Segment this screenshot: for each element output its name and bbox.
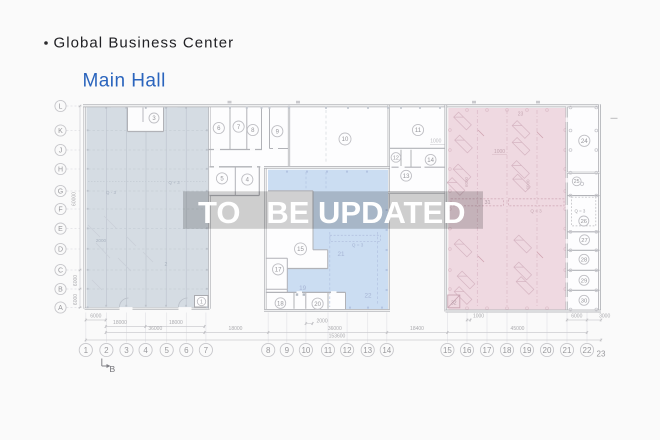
svg-text:A: A [58,305,63,312]
svg-text:Global Business Center: Global Business Center [54,35,235,52]
svg-text:7: 7 [204,346,209,355]
svg-text:28: 28 [581,257,587,263]
svg-text:9: 9 [285,346,290,355]
svg-text:F: F [58,207,62,214]
svg-text:6000: 6000 [73,294,79,305]
svg-text:17: 17 [275,268,282,274]
svg-text:29: 29 [581,278,587,284]
svg-text:6000: 6000 [73,275,79,286]
svg-text:153600: 153600 [329,333,346,339]
svg-text:21: 21 [563,346,572,355]
svg-text:6: 6 [184,346,189,355]
svg-text:20: 20 [314,302,321,308]
svg-text:45000: 45000 [511,326,525,332]
svg-text:18400: 18400 [410,326,424,332]
svg-text:6000: 6000 [526,179,531,190]
svg-text:12: 12 [393,155,399,161]
svg-text:14: 14 [382,346,391,355]
svg-text:27: 27 [581,238,587,244]
svg-text:2000: 2000 [96,238,107,243]
svg-text:22: 22 [364,292,372,299]
svg-text:4: 4 [143,346,148,355]
svg-text:3: 3 [124,346,129,355]
svg-text:19: 19 [299,285,307,292]
svg-text:10: 10 [342,137,349,143]
svg-text:1000: 1000 [494,149,505,155]
svg-text:6000: 6000 [464,176,469,187]
svg-text:1000: 1000 [430,139,441,145]
svg-text:14: 14 [427,158,434,164]
svg-text:21: 21 [337,251,345,258]
svg-text:16: 16 [463,346,472,355]
svg-text:2: 2 [165,262,168,268]
svg-text:1000: 1000 [473,313,484,319]
svg-text:12: 12 [343,346,352,355]
svg-text:K: K [58,128,63,135]
svg-text:1: 1 [200,299,203,305]
svg-text:36000: 36000 [148,326,162,332]
svg-text:31: 31 [484,200,490,206]
svg-text:TO BE UPDATED: TO BE UPDATED [198,195,466,230]
svg-text:2000: 2000 [317,318,328,324]
svg-text:36000: 36000 [328,326,342,332]
svg-text:30: 30 [581,298,587,304]
svg-text:18: 18 [277,301,284,307]
svg-text:L: L [59,104,63,111]
svg-text:17: 17 [483,346,492,355]
svg-text:G: G [58,189,63,196]
svg-text:11: 11 [415,128,422,134]
svg-text:18000: 18000 [169,320,183,326]
svg-text:E: E [58,226,63,233]
svg-text:20: 20 [543,346,552,355]
svg-text:Q = 3: Q = 3 [352,243,364,248]
svg-text:18000: 18000 [113,320,127,326]
svg-text:Q = 3: Q = 3 [530,209,542,214]
svg-text:32: 32 [451,300,457,306]
svg-text:18000: 18000 [229,326,243,332]
svg-text:60000: 60000 [72,192,78,206]
svg-text:C: C [58,268,63,275]
svg-text:18: 18 [503,346,512,355]
svg-text:B: B [109,364,115,374]
svg-text:26: 26 [581,219,587,225]
svg-text:25: 25 [574,179,580,185]
svg-text:22: 22 [583,346,592,355]
svg-text:1: 1 [84,346,89,355]
svg-text:15: 15 [297,247,304,253]
svg-text:24: 24 [581,138,588,145]
svg-text:19: 19 [523,346,532,355]
svg-text:Q = 3: Q = 3 [574,209,585,214]
svg-text:2: 2 [104,346,109,355]
svg-text:10: 10 [301,346,310,355]
svg-text:23: 23 [518,112,524,118]
svg-text:Q - 3: Q - 3 [106,190,117,195]
svg-text:J: J [59,148,63,155]
svg-text:3000: 3000 [599,313,610,319]
svg-text:Main Hall: Main Hall [83,71,166,92]
svg-text:11: 11 [324,346,333,355]
svg-text:13: 13 [403,174,410,180]
svg-text:6000: 6000 [90,313,101,319]
svg-text:5: 5 [164,346,169,355]
svg-text:B: B [58,287,63,294]
svg-text:D: D [58,247,63,254]
svg-text:H: H [58,167,63,174]
svg-text:8: 8 [266,346,271,355]
svg-text:15: 15 [443,346,452,355]
svg-text:6000: 6000 [571,313,582,319]
svg-text:13: 13 [363,346,372,355]
svg-text:23: 23 [597,350,606,359]
svg-text:Q + 3: Q + 3 [168,180,180,185]
